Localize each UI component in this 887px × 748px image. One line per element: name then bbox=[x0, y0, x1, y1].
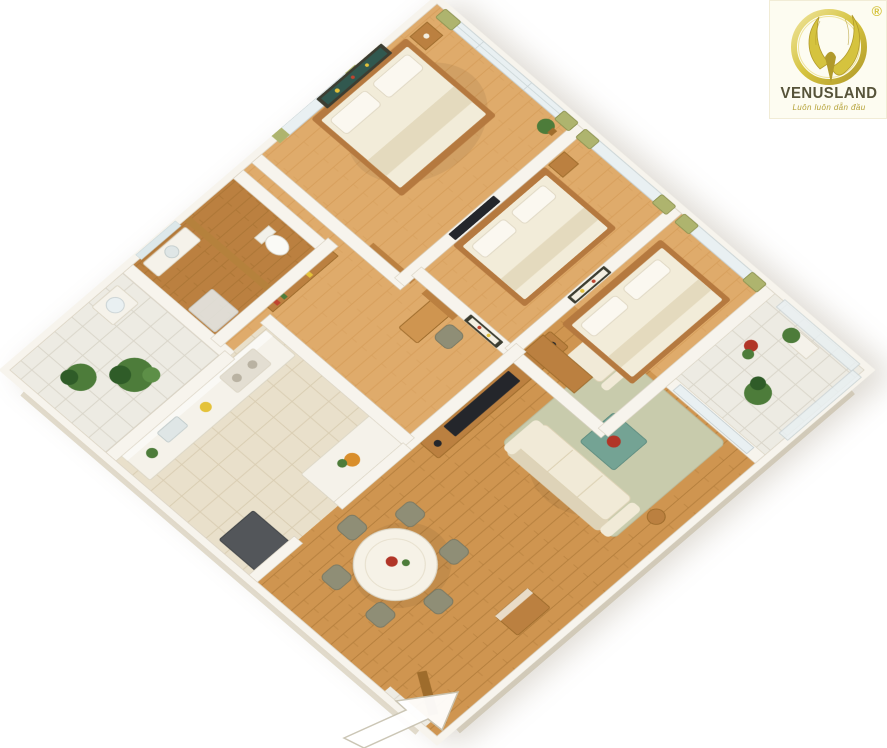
wing-streaks bbox=[816, 19, 849, 45]
arrow-shape bbox=[344, 692, 458, 748]
floor-plan-render: ® VENUSLAND Luôn luôn dẫn đầu bbox=[0, 0, 887, 748]
brand-tagline: Luôn luôn dẫn đầu bbox=[770, 103, 887, 112]
registered-mark: ® bbox=[872, 3, 882, 19]
entrance-arrow bbox=[330, 666, 500, 748]
brand-logo: ® VENUSLAND Luôn luôn dẫn đầu bbox=[769, 0, 887, 119]
apartment-plan bbox=[0, 0, 875, 746]
logo-emblem bbox=[770, 5, 887, 87]
isometric-scene bbox=[0, 0, 887, 748]
floor-plan-svg bbox=[0, 0, 875, 746]
brand-name: VENUSLAND bbox=[772, 85, 885, 103]
